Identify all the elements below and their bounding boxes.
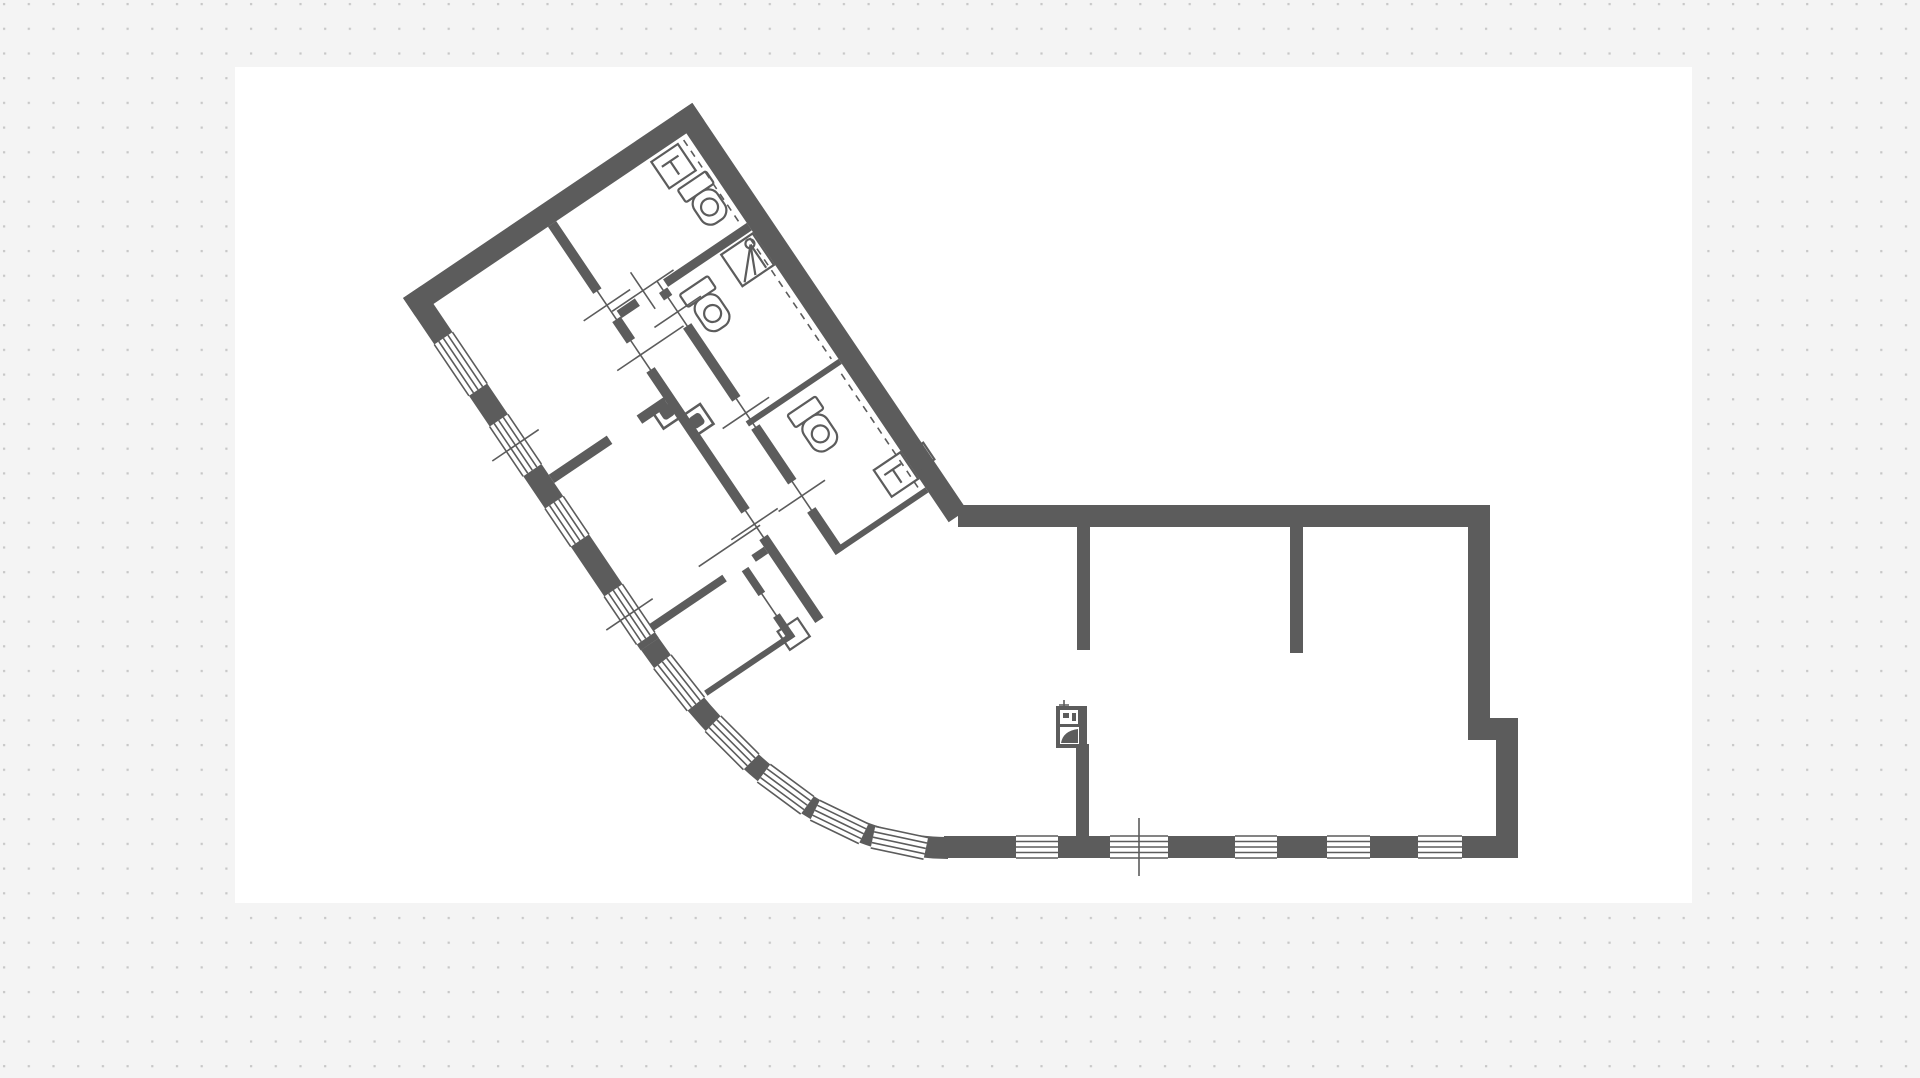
plan-viewport — [0, 0, 1920, 1078]
appliance-box-icon — [1056, 700, 1087, 748]
plan-canvas[interactable] — [0, 0, 1920, 1078]
drawing-sheet[interactable] — [235, 67, 1692, 903]
